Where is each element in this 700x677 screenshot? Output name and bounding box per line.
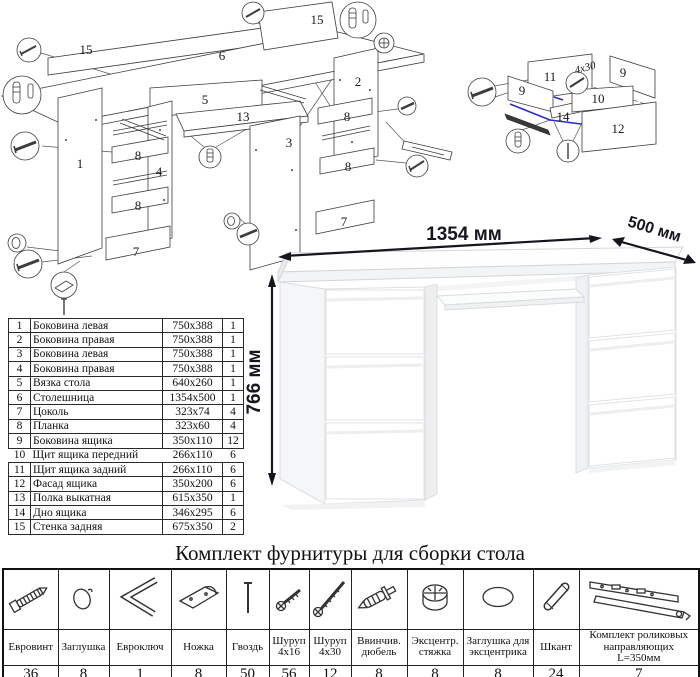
part-label: 8 xyxy=(344,109,351,124)
part-label: 11 xyxy=(544,69,557,84)
part-size: 1354x500 xyxy=(163,390,223,404)
table-row: 7 Цоколь 323x74 4 xyxy=(9,405,244,419)
hardware-name: Гвоздь xyxy=(226,630,269,666)
part-name: Боковина левая xyxy=(31,319,163,333)
hardware-qty: 8 xyxy=(58,665,109,677)
part-label: 10 xyxy=(592,91,605,106)
part-size: 266x110 xyxy=(163,448,223,462)
part-label: 15 xyxy=(80,42,93,57)
part-number: 12 xyxy=(9,477,31,491)
foot-icon xyxy=(171,569,226,630)
callout-cap-icon xyxy=(224,213,240,229)
callout-cap-icon xyxy=(8,234,26,252)
desk-dimension-figure: 1354 мм 500 мм 766 мм xyxy=(240,210,700,540)
part-name: Боковина ящика xyxy=(31,434,163,448)
hardware-qty: 7 xyxy=(579,665,699,677)
part-label: 9 xyxy=(620,65,627,80)
hardware-name: Заглушка xyxy=(58,630,109,666)
screw-in-dowel-icon xyxy=(351,569,407,630)
callout-foot-icon xyxy=(51,272,77,315)
callout-bolt-icon xyxy=(199,146,221,168)
hardware-name: Шкант xyxy=(533,630,579,666)
callout-nail-icon xyxy=(557,140,579,162)
hardware-qty: 36 xyxy=(3,665,58,677)
wood-dowel-icon xyxy=(533,569,579,630)
part-name: Планка xyxy=(31,419,163,433)
part-name: Боковина левая xyxy=(31,347,163,361)
part-label: 12 xyxy=(612,121,625,136)
left-drawers xyxy=(326,290,424,499)
table-row: 8 Планка 323x60 4 xyxy=(9,419,244,433)
part-number: 14 xyxy=(9,506,31,520)
hardware-qty: 24 xyxy=(533,665,579,677)
hardware-qty: 12 xyxy=(309,665,351,677)
table-row: 5 Вязка стола 640x260 1 xyxy=(9,376,244,390)
hardware-qty: 8 xyxy=(351,665,407,677)
callout-screw-icon xyxy=(17,38,41,62)
part-name: Щит ящика задний xyxy=(31,462,163,476)
part-label: 8 xyxy=(135,148,142,163)
part-name: Цоколь xyxy=(31,405,163,419)
part-number: 2 xyxy=(9,333,31,347)
table-row: 3 Боковина левая 750x388 1 xyxy=(9,347,244,361)
part-name: Фасад ящика xyxy=(31,477,163,491)
assembly-instruction-page: 15 6 15 5 13 1 8 4 8 7 2 8 3 8 7 xyxy=(0,0,700,677)
table-row: 11 Щит ящика задний 266x110 6 xyxy=(9,462,244,476)
part-size: 323x60 xyxy=(163,419,223,433)
table-row: 4 Боковина правая 750x388 1 xyxy=(9,362,244,376)
part-size: 266x110 xyxy=(163,462,223,476)
part-size: 350x200 xyxy=(163,477,223,491)
part-size: 323x74 xyxy=(163,405,223,419)
depth-dimension: 500 мм xyxy=(626,214,683,246)
callout-screw-icon xyxy=(242,2,264,24)
part-number: 5 xyxy=(9,376,31,390)
hardware-name: Евровинт xyxy=(3,630,58,666)
hardware-qty: 1 xyxy=(109,665,171,677)
part-label: 4 xyxy=(156,164,163,179)
part-number: 13 xyxy=(9,491,31,505)
hardware-name: Ножка xyxy=(171,630,226,666)
part-number: 15 xyxy=(9,520,31,534)
screw-4x30-icon xyxy=(309,569,351,630)
callout-euro-screw-icon xyxy=(398,97,416,115)
right-drawers xyxy=(589,269,675,466)
callout-euro-screw-icon xyxy=(11,132,39,160)
callout-dowel-pin-icon xyxy=(340,2,376,38)
roller-guides-icon xyxy=(579,569,699,630)
nail-icon xyxy=(226,569,269,630)
part-number: 11 xyxy=(9,462,31,476)
part-label: 15 xyxy=(311,12,324,27)
part-size: 750x388 xyxy=(163,362,223,376)
hardware-qty: 56 xyxy=(269,665,309,677)
callout-euro-screw-icon xyxy=(14,250,42,278)
table-row: 2 Боковина правая 750x388 1 xyxy=(9,333,244,347)
table-row: 13 Полка выкатная 615x350 1 xyxy=(9,491,244,505)
part-size: 750x388 xyxy=(163,333,223,347)
part-name: Дно ящика xyxy=(31,506,163,520)
part-name: Вязка стола xyxy=(31,376,163,390)
table-row: 1 Боковина левая 750x388 1 xyxy=(9,319,244,333)
left-pedestal-side xyxy=(280,282,325,504)
hardware-table: Евровинт Заглушка Евроключ Ножка Гвоздь … xyxy=(2,568,700,677)
table-row: 9 Боковина ящика 350x110 12 xyxy=(9,434,244,448)
table-row: 12 Фасад ящика 350x200 6 xyxy=(9,477,244,491)
table-row: 15 Стенка задняя 675x350 2 xyxy=(9,520,244,534)
part-label: 14 xyxy=(557,109,571,124)
width-dimension: 1354 мм xyxy=(426,224,502,245)
hardware-name: Шуруп 4x16 xyxy=(269,630,309,666)
callout-dowel-icon xyxy=(506,129,530,153)
part-size: 750x388 xyxy=(163,319,223,333)
hardware-name: Ввинчив. дюбель xyxy=(351,630,407,666)
euro-screw-icon xyxy=(3,569,58,630)
eccentric-cam-icon xyxy=(407,569,463,630)
height-dimension: 766 мм xyxy=(244,349,265,414)
hardware-qty: 8 xyxy=(463,665,533,677)
part-name: Щит ящика передний xyxy=(31,448,163,462)
hardware-name: Шуруп 4x30 xyxy=(309,630,351,666)
hardware-qty: 50 xyxy=(226,665,269,677)
part-number: 7 xyxy=(9,405,31,419)
table-row: 10 Щит ящика передний 266x110 6 xyxy=(9,448,244,462)
part-name: Полка выкатная xyxy=(31,491,163,505)
part-number: 8 xyxy=(9,419,31,433)
table-row: 6 Столешница 1354x500 1 xyxy=(9,390,244,404)
part-number: 6 xyxy=(9,390,31,404)
part-label: 3 xyxy=(286,135,293,150)
callout-euro-screw-icon xyxy=(468,78,496,106)
part-name: Стенка задняя xyxy=(31,520,163,534)
part-label: 8 xyxy=(345,159,352,174)
part-label: 1 xyxy=(77,156,84,171)
part-size: 346x295 xyxy=(163,506,223,520)
part-label: 9 xyxy=(519,83,526,98)
callout-screw-icon xyxy=(406,155,428,177)
screw-4x16-icon xyxy=(269,569,309,630)
side-panel-1 xyxy=(58,88,102,264)
part-size: 640x260 xyxy=(163,376,223,390)
hardware-name: Эксцентр. стяжка xyxy=(407,630,463,666)
cap-icon xyxy=(58,569,109,630)
drawer-exploded-diagram: 11 9 9 10 14 12 4x30 xyxy=(450,40,700,220)
part-label: 13 xyxy=(237,109,250,124)
part-size: 350x110 xyxy=(163,434,223,448)
part-label: 5 xyxy=(202,92,209,107)
part-size: 675x350 xyxy=(163,520,223,534)
part-name: Столешница xyxy=(31,390,163,404)
hardware-qty: 8 xyxy=(171,665,226,677)
parts-table: 1 Боковина левая 750x388 1 2 Боковина пр… xyxy=(8,318,244,535)
part-size: 750x388 xyxy=(163,347,223,361)
part-number: 10 xyxy=(9,448,31,462)
part-label: 8 xyxy=(135,198,142,213)
part-name: Боковина правая xyxy=(31,362,163,376)
hardware-qty: 8 xyxy=(407,665,463,677)
part-label: 6 xyxy=(219,48,226,63)
part-number: 4 xyxy=(9,362,31,376)
part-name: Боковина правая xyxy=(31,333,163,347)
hardware-name: Заглушка для эксцентрика xyxy=(463,630,533,666)
callout-dowel-pin-icon xyxy=(3,76,41,114)
hardware-name: Евроключ xyxy=(109,630,171,666)
part-label: 7 xyxy=(133,244,140,259)
table-row: 14 Дно ящика 346x295 6 xyxy=(9,506,244,520)
part-size: 615x350 xyxy=(163,491,223,505)
part-number: 3 xyxy=(9,347,31,361)
part-label: 2 xyxy=(355,74,362,89)
part-number: 1 xyxy=(9,319,31,333)
cam-cap-icon xyxy=(463,569,533,630)
hardware-kit-title: Комплект фурнитуры для сборки стола xyxy=(0,541,700,566)
part-number: 9 xyxy=(9,434,31,448)
hardware-name: Комплект роликовых направляющих L=350мм xyxy=(579,630,699,666)
hex-key-icon xyxy=(109,569,171,630)
callout-eccentric-cam-icon xyxy=(374,33,394,53)
